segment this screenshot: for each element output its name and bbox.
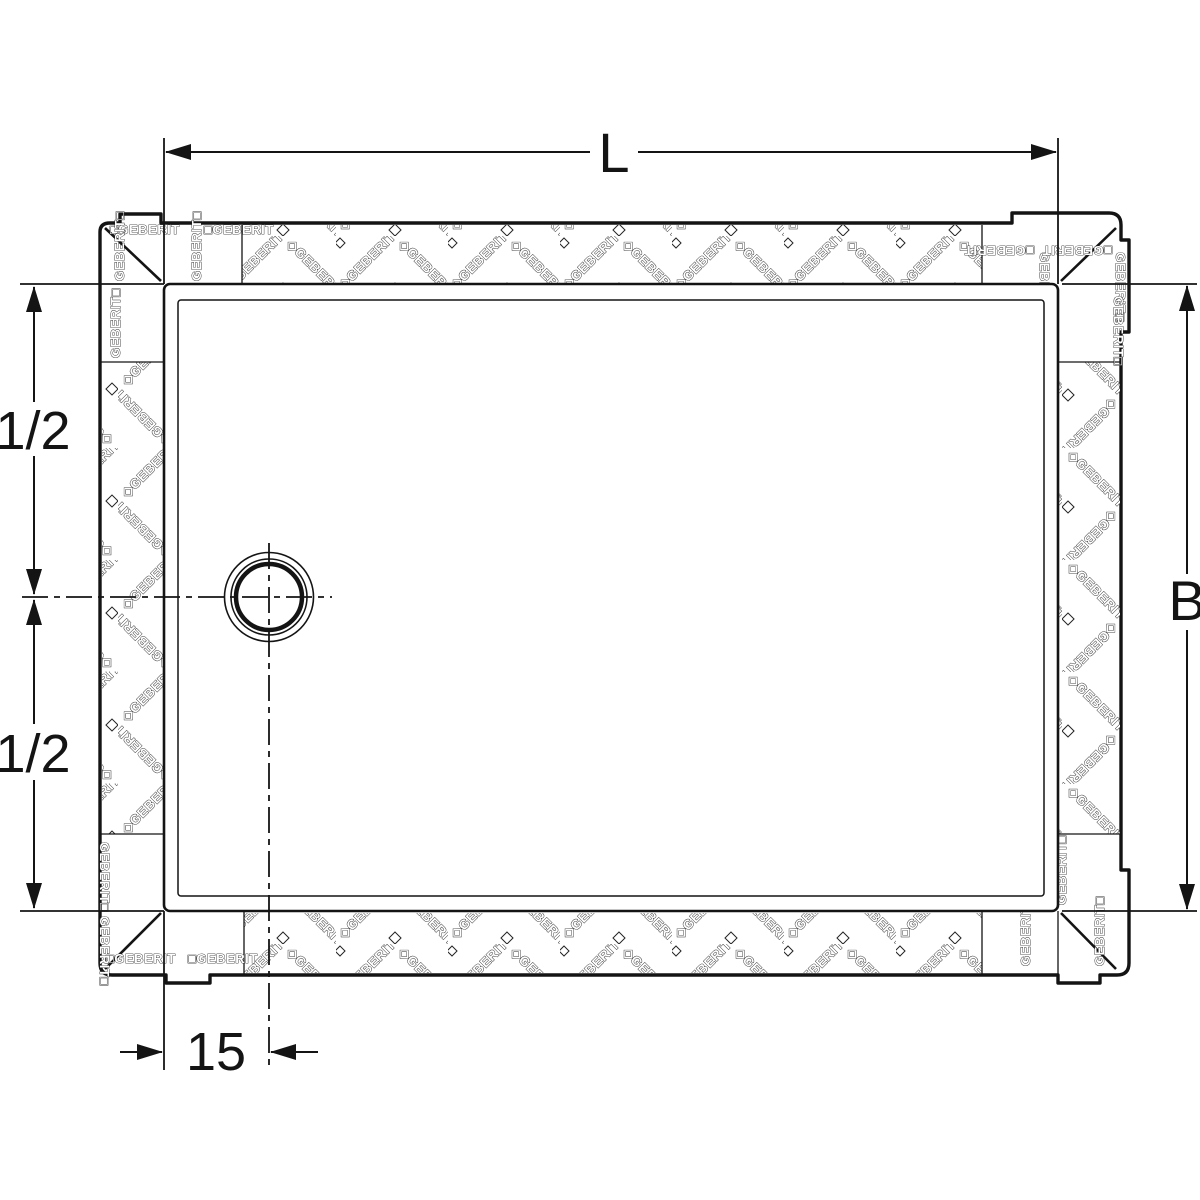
arrow-up-icon (26, 599, 42, 625)
tape-band-top (242, 225, 982, 283)
brand-tag: GEBERIT□ (97, 916, 112, 986)
brand-tag: □GEBERIT (188, 951, 258, 966)
brand-tag: □GEBERIT (106, 951, 176, 966)
arrow-left-icon (270, 1044, 296, 1060)
arrow-left-icon (165, 144, 191, 160)
dim-label-drain-offset: 15 (186, 1022, 246, 1082)
technical-diagram-canvas: ◇GEBERIT ◇GEBERIT ◇GEBERIT ◇GEBERIT ◇GEB… (0, 0, 1200, 1200)
arrow-up-icon (1179, 285, 1195, 311)
arrow-down-icon (26, 883, 42, 909)
dim-label-half-lower: 1/2 (0, 724, 71, 784)
brand-tag: GEBERIT□ (189, 211, 204, 281)
brand-tag: □GEBERIT (964, 243, 1034, 258)
tape-band-left (102, 362, 163, 834)
brand-tag: GEBERIT□ (1111, 296, 1126, 366)
dim-label-half-upper: 1/2 (0, 401, 71, 461)
brand-tag: GEBERIT□ (1092, 896, 1107, 966)
arrow-right-icon (1031, 144, 1057, 160)
tape-band-right (1059, 362, 1120, 834)
tape-band-bottom (244, 913, 982, 973)
arrow-down-icon (26, 569, 42, 595)
arrow-down-icon (1179, 884, 1195, 910)
brand-tag: GEBERIT□ (112, 211, 127, 281)
arrow-up-icon (26, 286, 42, 312)
dim-label-length: L (598, 121, 629, 184)
brand-tag: □GEBERIT (1042, 243, 1112, 258)
shower-tray-installation-diagram: ◇GEBERIT ◇GEBERIT ◇GEBERIT ◇GEBERIT ◇GEB… (0, 0, 1200, 1200)
dim-label-width: B (1168, 569, 1200, 632)
arrow-right-icon (137, 1044, 163, 1060)
brand-tag: GEBERIT□ (97, 842, 112, 912)
brand-tag: GEBERIT□ (108, 288, 123, 358)
brand-tag: □GEBERIT (204, 222, 274, 237)
